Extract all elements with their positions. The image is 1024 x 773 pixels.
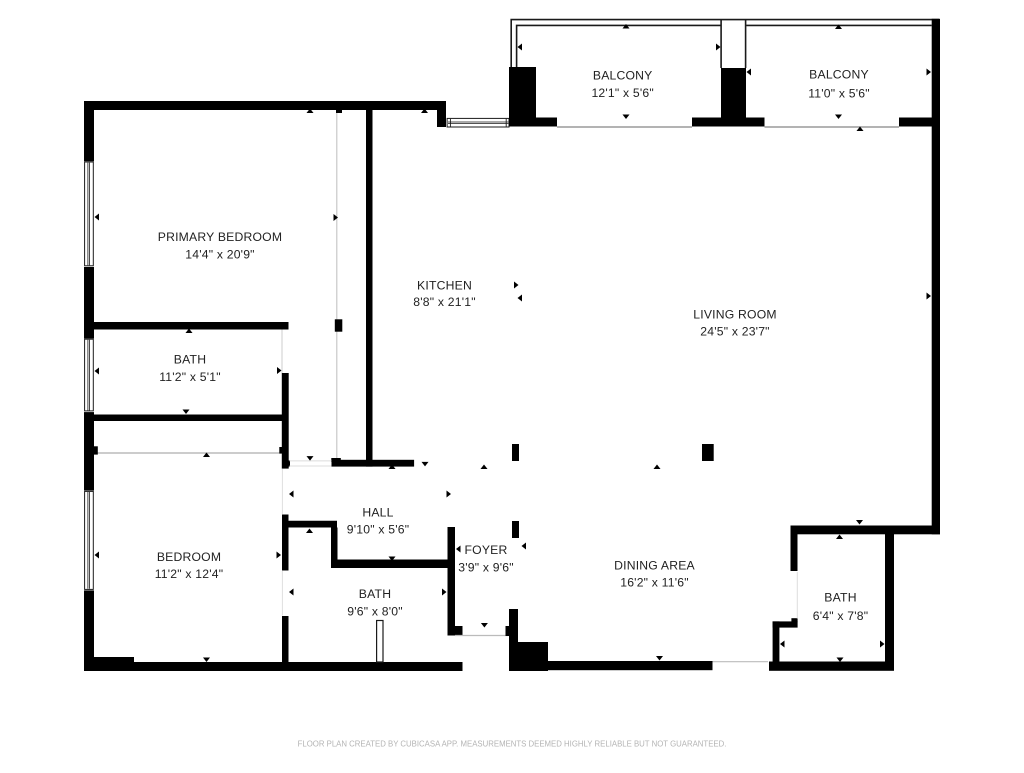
svg-text:BATH: BATH xyxy=(359,587,391,601)
svg-text:LIVING ROOM: LIVING ROOM xyxy=(693,307,776,321)
svg-text:FOYER: FOYER xyxy=(465,543,508,557)
svg-text:8'8" x 21'1": 8'8" x 21'1" xyxy=(413,295,475,309)
svg-text:14'4" x 20'9": 14'4" x 20'9" xyxy=(185,247,254,261)
svg-text:KITCHEN: KITCHEN xyxy=(417,278,472,292)
svg-text:BEDROOM: BEDROOM xyxy=(157,550,221,564)
svg-text:3'9" x 9'6": 3'9" x 9'6" xyxy=(458,560,514,574)
svg-text:BATH: BATH xyxy=(824,590,856,604)
svg-text:12'1" x 5'6": 12'1" x 5'6" xyxy=(591,86,653,100)
svg-text:11'0" x 5'6": 11'0" x 5'6" xyxy=(808,86,870,100)
svg-text:DINING AREA: DINING AREA xyxy=(614,558,695,572)
svg-text:9'6" x 8'0": 9'6" x 8'0" xyxy=(347,604,403,618)
svg-text:PRIMARY BEDROOM: PRIMARY BEDROOM xyxy=(158,230,282,244)
svg-text:24'5" x 23'7": 24'5" x 23'7" xyxy=(700,324,769,338)
svg-text:BALCONY: BALCONY xyxy=(593,69,653,83)
svg-text:HALL: HALL xyxy=(362,505,393,519)
svg-text:11'2" x 5'1": 11'2" x 5'1" xyxy=(159,370,221,384)
svg-text:BALCONY: BALCONY xyxy=(809,68,869,82)
svg-text:6'4" x 7'8": 6'4" x 7'8" xyxy=(813,609,869,623)
svg-text:BATH: BATH xyxy=(174,352,206,366)
svg-text:9'10" x 5'6": 9'10" x 5'6" xyxy=(347,522,409,536)
svg-text:11'2" x 12'4": 11'2" x 12'4" xyxy=(155,567,224,581)
svg-text:16'2" x 11'6": 16'2" x 11'6" xyxy=(620,575,689,589)
svg-text:FLOOR PLAN CREATED BY CUBICASA: FLOOR PLAN CREATED BY CUBICASA APP. MEAS… xyxy=(298,740,727,749)
